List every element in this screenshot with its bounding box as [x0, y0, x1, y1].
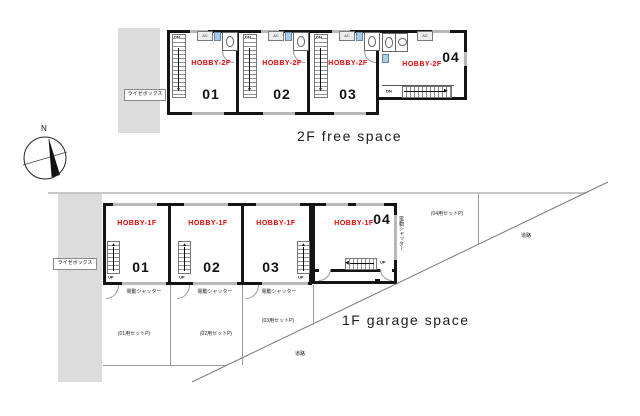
raise-box-strip-2f — [118, 28, 160, 133]
toilet-icon — [226, 36, 234, 47]
window — [464, 52, 467, 66]
site-plan: ライゼボックス DN ▼ AC HOBBY-2F 01 DN ▼ AC HOBB… — [0, 0, 640, 416]
water-heater-icon — [214, 32, 221, 41]
shutter-opening — [193, 282, 237, 285]
stair-arrow-icon: ◀ — [345, 261, 349, 266]
stair-arrow-line — [249, 48, 250, 88]
window — [326, 203, 348, 206]
unit-name-label: HOBBY-2F — [322, 59, 374, 68]
stair-direction-label: UP — [179, 276, 185, 280]
unit-name-label: HOBBY-1F — [251, 219, 301, 228]
floor1-title: 1F garage space — [342, 312, 470, 328]
stair-arrow-line — [178, 48, 179, 88]
stair-arrow-line — [303, 247, 304, 271]
wall-divider — [168, 203, 171, 285]
stair-arrow-line — [184, 247, 185, 271]
porch-wall — [312, 281, 397, 284]
stair-direction-label: UP — [298, 276, 304, 280]
stair-direction-label: DN — [316, 36, 322, 40]
shutter-opening — [262, 282, 308, 285]
compass-north-label: N — [41, 124, 47, 133]
stair-arrow-line — [350, 263, 374, 264]
window — [263, 112, 295, 115]
porch-wall — [312, 272, 315, 284]
window — [432, 30, 450, 33]
road-label: 道路 — [295, 351, 305, 358]
toilet-icon — [385, 37, 393, 48]
unit-number: 02 — [256, 86, 308, 102]
window — [192, 112, 224, 115]
parking-label: (02用セットP) — [191, 331, 241, 338]
window — [256, 203, 300, 206]
window — [184, 203, 228, 206]
window — [356, 203, 384, 206]
ac-unit-label: AC — [197, 31, 213, 41]
stair-arrow-icon: ▲ — [301, 243, 306, 248]
shutter-label: 電動シャッター — [186, 289, 244, 296]
stair-arrow-icon: ▲ — [111, 243, 116, 248]
raise-box-label-1f: ライゼボックス — [53, 258, 97, 270]
unit-number: 04 — [438, 49, 464, 65]
stair-arrow-icon: ▼ — [176, 88, 181, 93]
raise-box-label-2f: ライゼボックス — [124, 89, 166, 101]
unit-number: 01 — [116, 259, 166, 275]
stair-direction-label: DN — [386, 90, 392, 94]
parking-label: (04用セットP) — [420, 211, 474, 218]
road-label: 道路 — [521, 233, 531, 240]
unit-number: 01 — [185, 86, 237, 102]
unit-name-label: HOBBY-1F — [112, 219, 162, 228]
water-heater-icon — [356, 32, 363, 41]
stair-arrow-icon: ▶ — [444, 89, 448, 94]
shutter-opening — [122, 282, 166, 285]
unit-number: 04 — [369, 211, 395, 227]
ac-unit-label: AC — [339, 31, 355, 41]
stair-arrow-line — [404, 91, 446, 92]
ac-unit-label: AC — [417, 31, 433, 41]
door-arc-icon — [319, 269, 331, 281]
unit-name-label: HOBBY-2F — [185, 59, 237, 68]
window — [113, 203, 157, 206]
stair-direction-label: DN — [245, 36, 251, 40]
ac-unit-label: AC — [268, 31, 284, 41]
toilet-icon — [297, 36, 305, 47]
room-divider — [395, 33, 396, 52]
door-arc-icon — [380, 269, 392, 281]
parking-label: (03用セットP) — [253, 318, 303, 325]
floor2-title: 2F free space — [297, 128, 402, 144]
shutter-label: 電動シャッター — [115, 289, 173, 296]
stair-arrow-line — [320, 48, 321, 88]
toilet-icon — [368, 36, 376, 47]
water-heater-icon — [382, 54, 389, 63]
stair-arrow-icon: ▲ — [182, 243, 187, 248]
water-heater-icon — [285, 32, 292, 41]
wall-divider — [241, 203, 244, 285]
stair-direction-label: DN — [174, 36, 180, 40]
stair-direction-label: UP — [108, 276, 114, 280]
unit-name-label: HOBBY-1F — [183, 219, 233, 228]
unit-name-label: HOBBY-2F — [256, 59, 308, 68]
window — [334, 112, 366, 115]
stair-direction-label: UP — [380, 261, 386, 265]
unit-number: 02 — [187, 259, 237, 275]
unit-number: 03 — [246, 259, 296, 275]
stair-icon — [345, 258, 377, 270]
unit-number: 03 — [322, 86, 374, 102]
stair-arrow-line — [113, 247, 114, 271]
site-boundary-top — [48, 192, 586, 194]
shutter-label: 電動シャッター — [250, 289, 308, 296]
shutter-label-vertical: 電動シャッター — [398, 216, 404, 262]
stair-arrow-icon: ▼ — [247, 88, 252, 93]
porch-wall — [394, 272, 397, 284]
parking-label: (01用セットP) — [109, 331, 159, 338]
raise-box-strip-1f — [58, 194, 102, 382]
floor2-building-main — [167, 30, 379, 115]
pillar — [375, 279, 380, 284]
sink-icon — [398, 38, 407, 46]
